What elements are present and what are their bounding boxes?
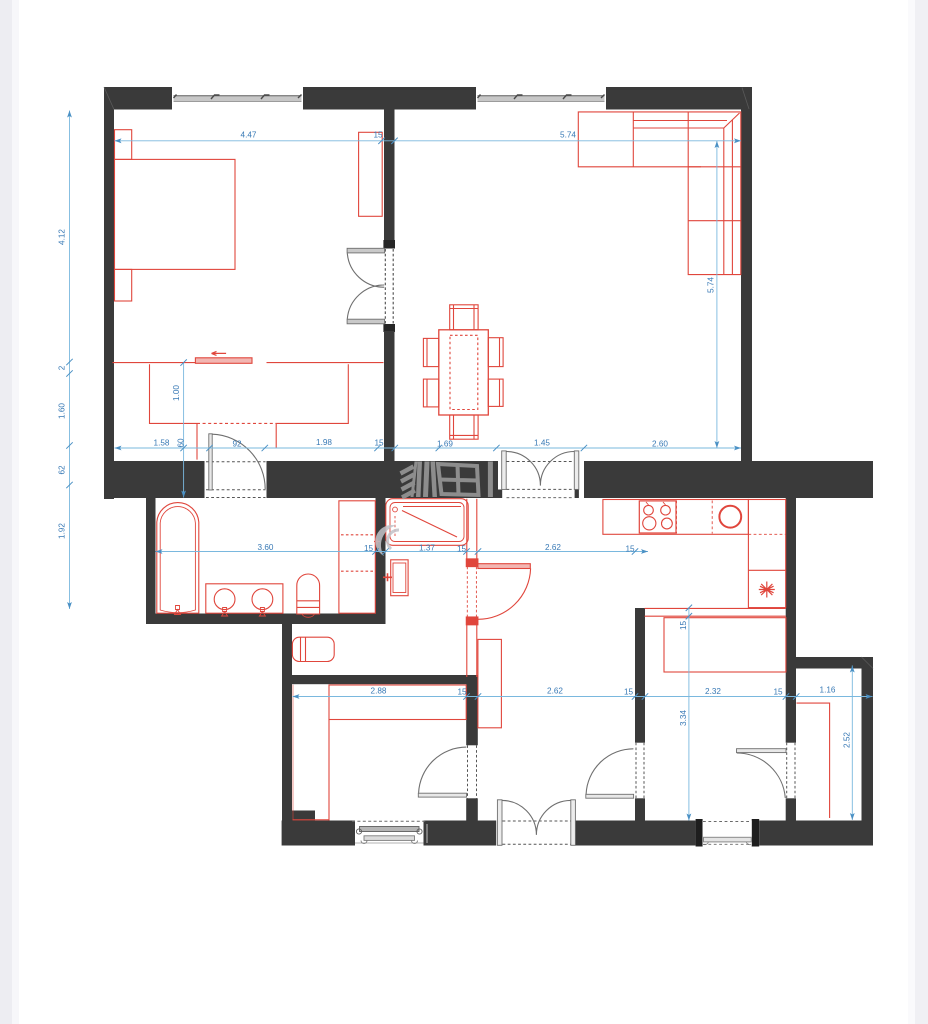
svg-text:60: 60: [176, 438, 185, 448]
svg-text:1.98: 1.98: [316, 438, 332, 447]
svg-text:15: 15: [624, 688, 634, 697]
svg-text:15: 15: [373, 131, 383, 140]
svg-text:4.47: 4.47: [241, 131, 257, 140]
svg-text:15: 15: [679, 621, 688, 631]
svg-text:5.74: 5.74: [707, 277, 716, 293]
svg-text:1.00: 1.00: [172, 385, 181, 401]
svg-text:3.60: 3.60: [258, 543, 274, 552]
svg-text:15: 15: [457, 545, 467, 554]
svg-text:1.60: 1.60: [58, 403, 67, 419]
svg-text:1.92: 1.92: [58, 523, 67, 539]
svg-text:15: 15: [374, 439, 384, 448]
svg-text:2.32: 2.32: [705, 687, 721, 696]
svg-text:15: 15: [364, 544, 374, 553]
svg-text:1.45: 1.45: [534, 439, 550, 448]
svg-text:1.58: 1.58: [154, 439, 170, 448]
svg-text:15: 15: [625, 545, 635, 554]
svg-text:5.74: 5.74: [560, 131, 576, 140]
svg-text:2.62: 2.62: [545, 543, 561, 552]
svg-text:15: 15: [773, 688, 783, 697]
svg-text:2.62: 2.62: [547, 687, 563, 696]
svg-text:2: 2: [58, 365, 67, 370]
svg-text:1.69: 1.69: [437, 440, 453, 449]
svg-text:2.60: 2.60: [652, 440, 668, 449]
svg-text:4.12: 4.12: [58, 229, 67, 245]
svg-text:3.34: 3.34: [679, 710, 688, 726]
svg-text:15: 15: [457, 688, 467, 697]
svg-text:1.16: 1.16: [820, 686, 836, 695]
svg-text:2.88: 2.88: [371, 687, 387, 696]
svg-text:2.52: 2.52: [843, 732, 852, 748]
svg-text:92: 92: [232, 440, 242, 449]
svg-text:1.37: 1.37: [419, 544, 435, 553]
svg-text:62: 62: [58, 465, 67, 475]
